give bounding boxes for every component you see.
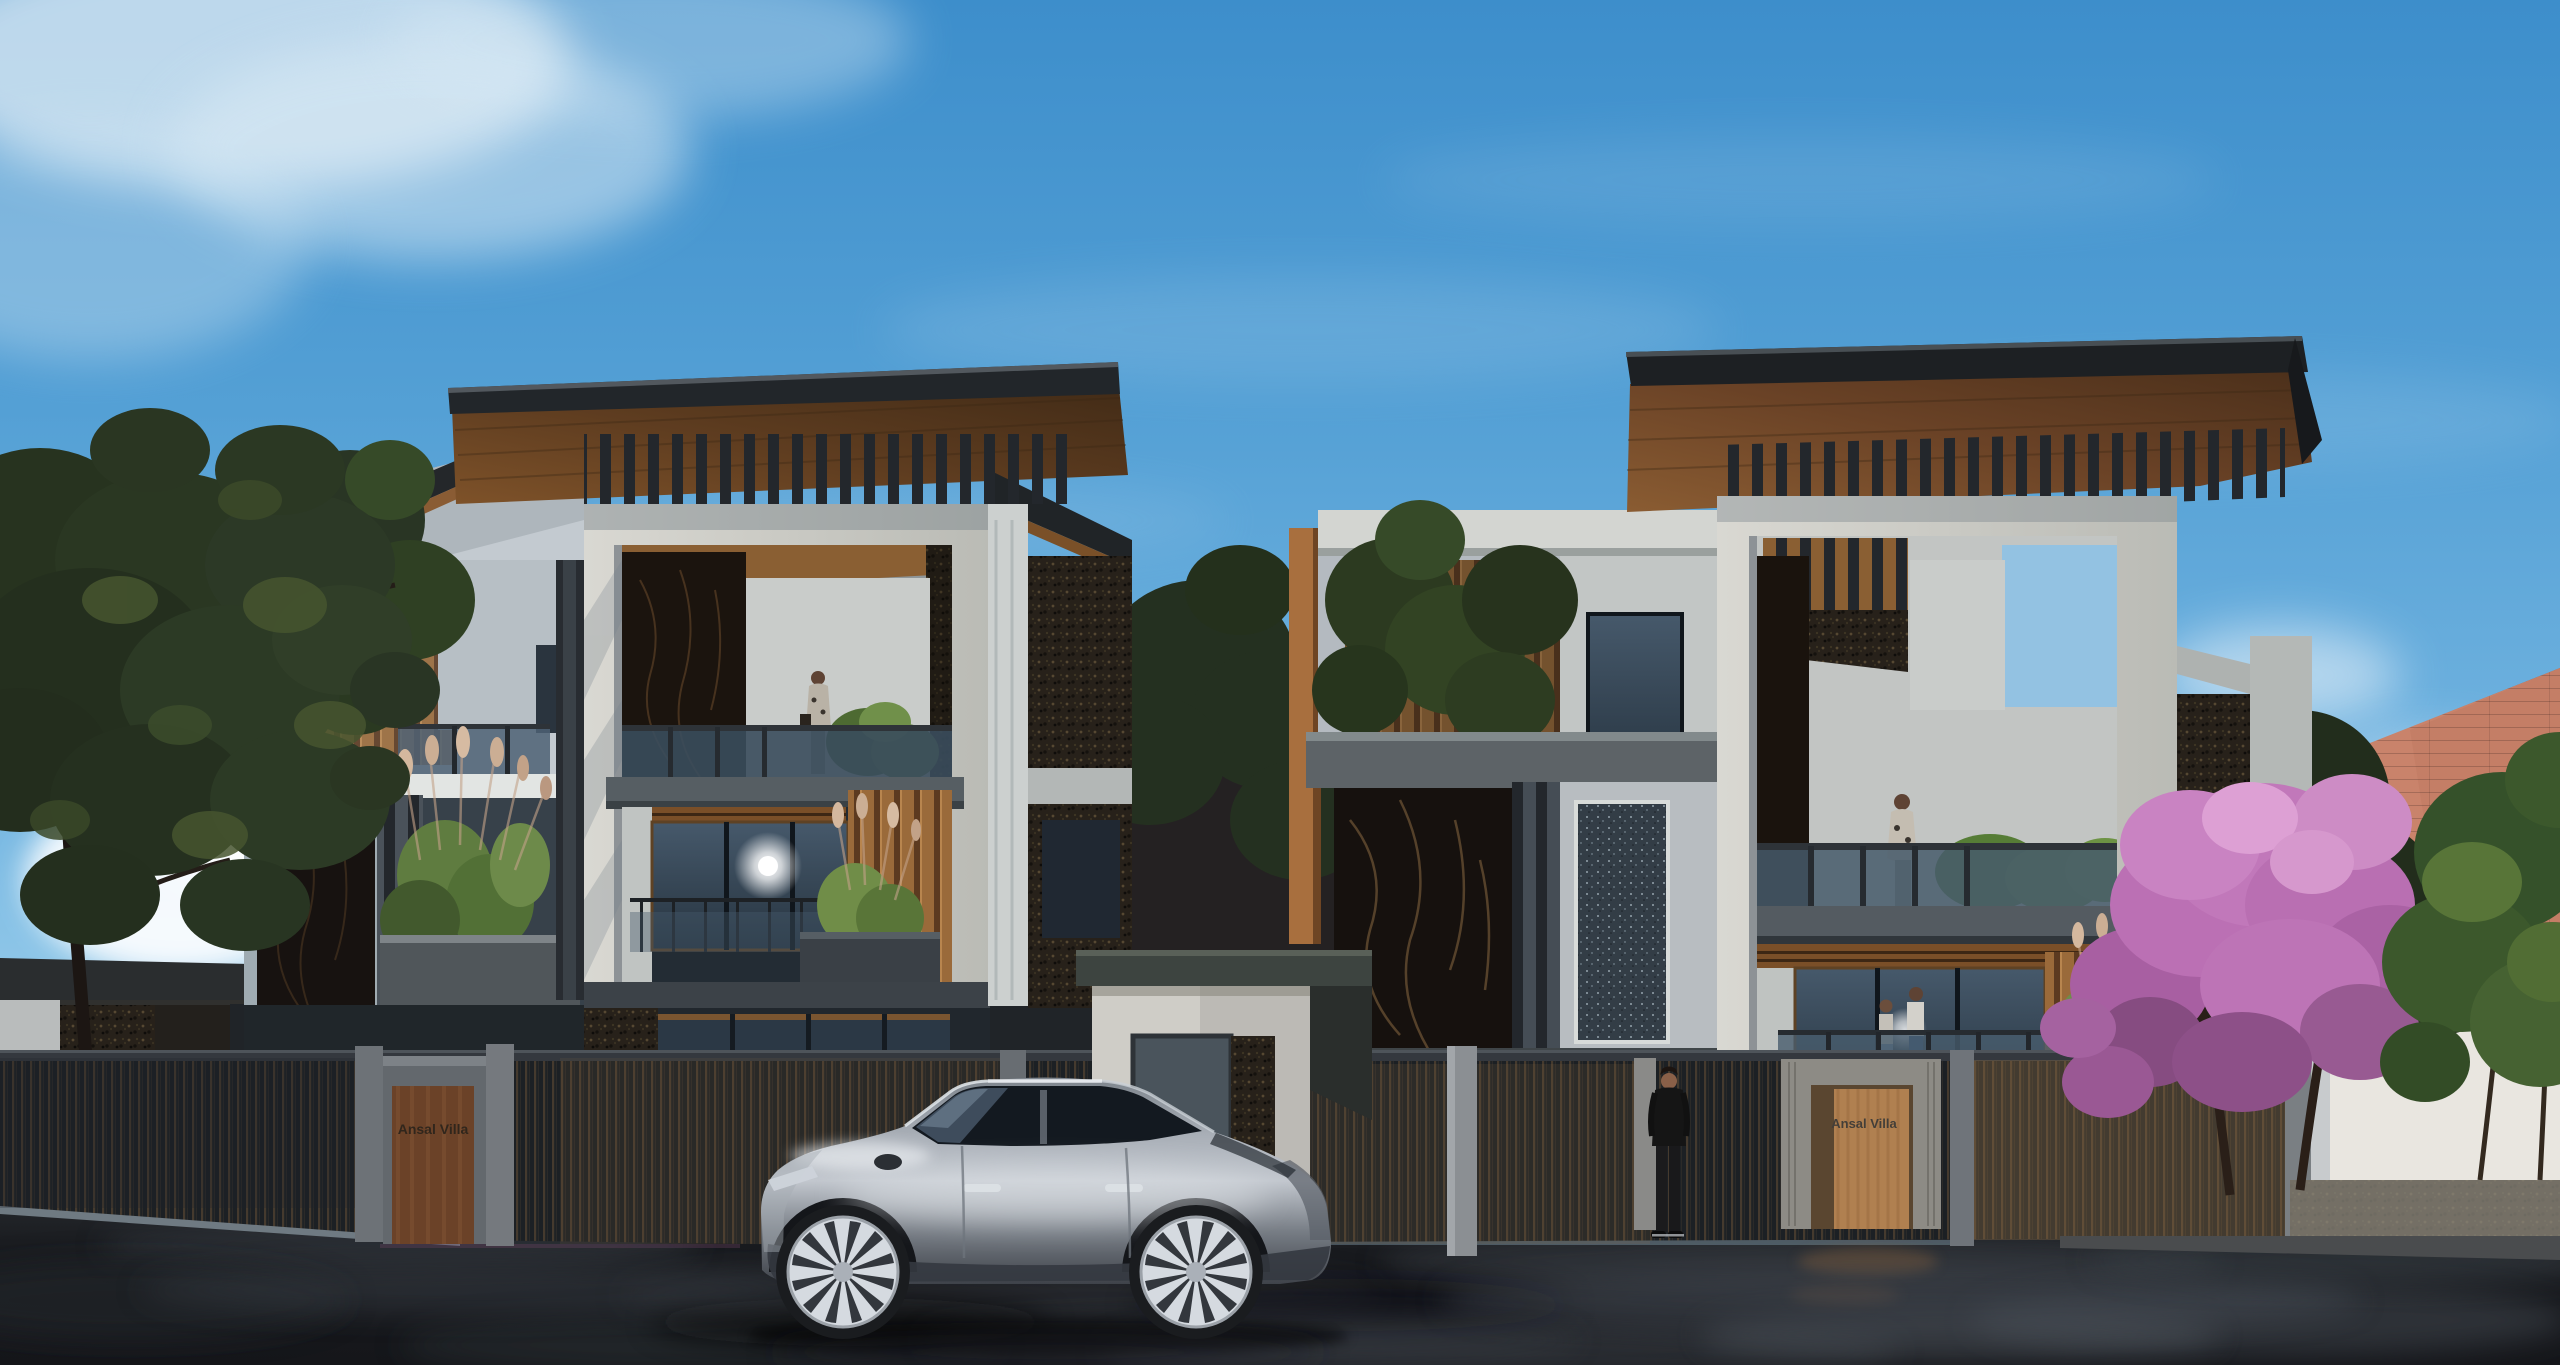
svg-text:Ansal Villa: Ansal Villa — [398, 1121, 469, 1137]
svg-text:Ansal Villa: Ansal Villa — [1831, 1116, 1897, 1131]
